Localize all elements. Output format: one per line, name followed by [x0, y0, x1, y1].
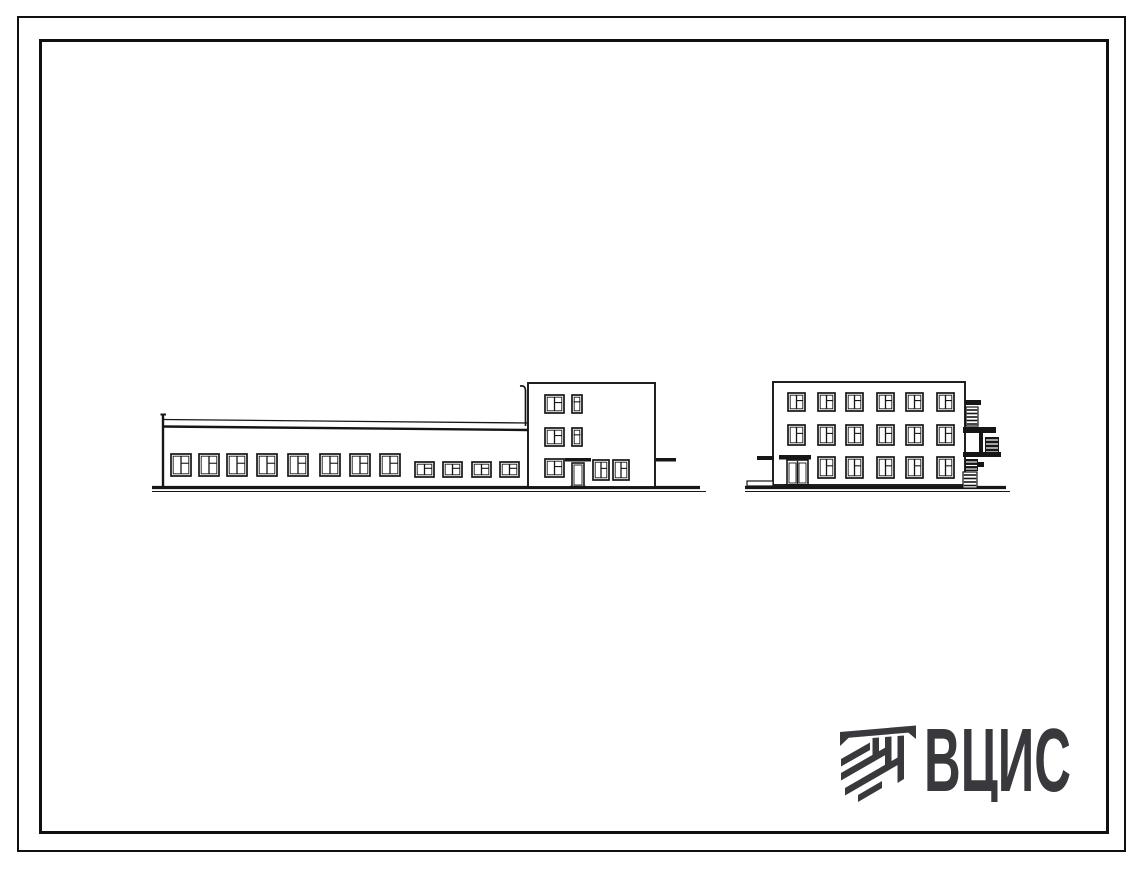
vcis-logo-text: ВЦИС	[924, 718, 1071, 802]
window	[937, 425, 954, 445]
window	[380, 454, 400, 476]
window	[877, 457, 894, 478]
window	[906, 425, 923, 445]
window	[593, 460, 609, 480]
window	[572, 395, 582, 413]
window	[788, 393, 805, 411]
window	[906, 393, 923, 411]
window	[937, 393, 954, 411]
three-storey-building-elevation	[745, 382, 1010, 492]
window	[227, 454, 247, 476]
window	[818, 393, 835, 411]
vcis-emblem-icon	[840, 726, 916, 803]
window	[613, 460, 629, 480]
window	[320, 454, 340, 476]
vcis-logo: ВЦИС	[836, 718, 1076, 802]
window	[171, 454, 191, 476]
window	[818, 425, 835, 445]
window	[818, 457, 835, 478]
drawing-sheet: { "sheet": { "background": "#ffffff", "f…	[0, 0, 1139, 869]
window	[937, 457, 954, 478]
window	[877, 425, 894, 445]
window	[545, 459, 564, 477]
window	[545, 395, 564, 413]
window	[906, 457, 923, 478]
window	[350, 454, 370, 476]
window	[846, 425, 863, 445]
window	[472, 462, 491, 477]
entrance-door	[570, 463, 586, 487]
window	[443, 462, 462, 477]
long-building-elevation	[152, 383, 706, 492]
window	[500, 462, 519, 477]
window	[788, 425, 805, 445]
window	[545, 428, 564, 446]
window	[257, 454, 277, 476]
fire-escape-ladder	[963, 400, 1001, 488]
window	[415, 462, 434, 477]
window	[572, 428, 582, 446]
window	[288, 454, 308, 476]
sheet: ВЦИС	[0, 0, 1139, 869]
entrance-double-door	[785, 460, 810, 487]
window	[877, 393, 894, 411]
window	[846, 457, 863, 478]
window	[199, 454, 219, 476]
window	[846, 393, 863, 411]
